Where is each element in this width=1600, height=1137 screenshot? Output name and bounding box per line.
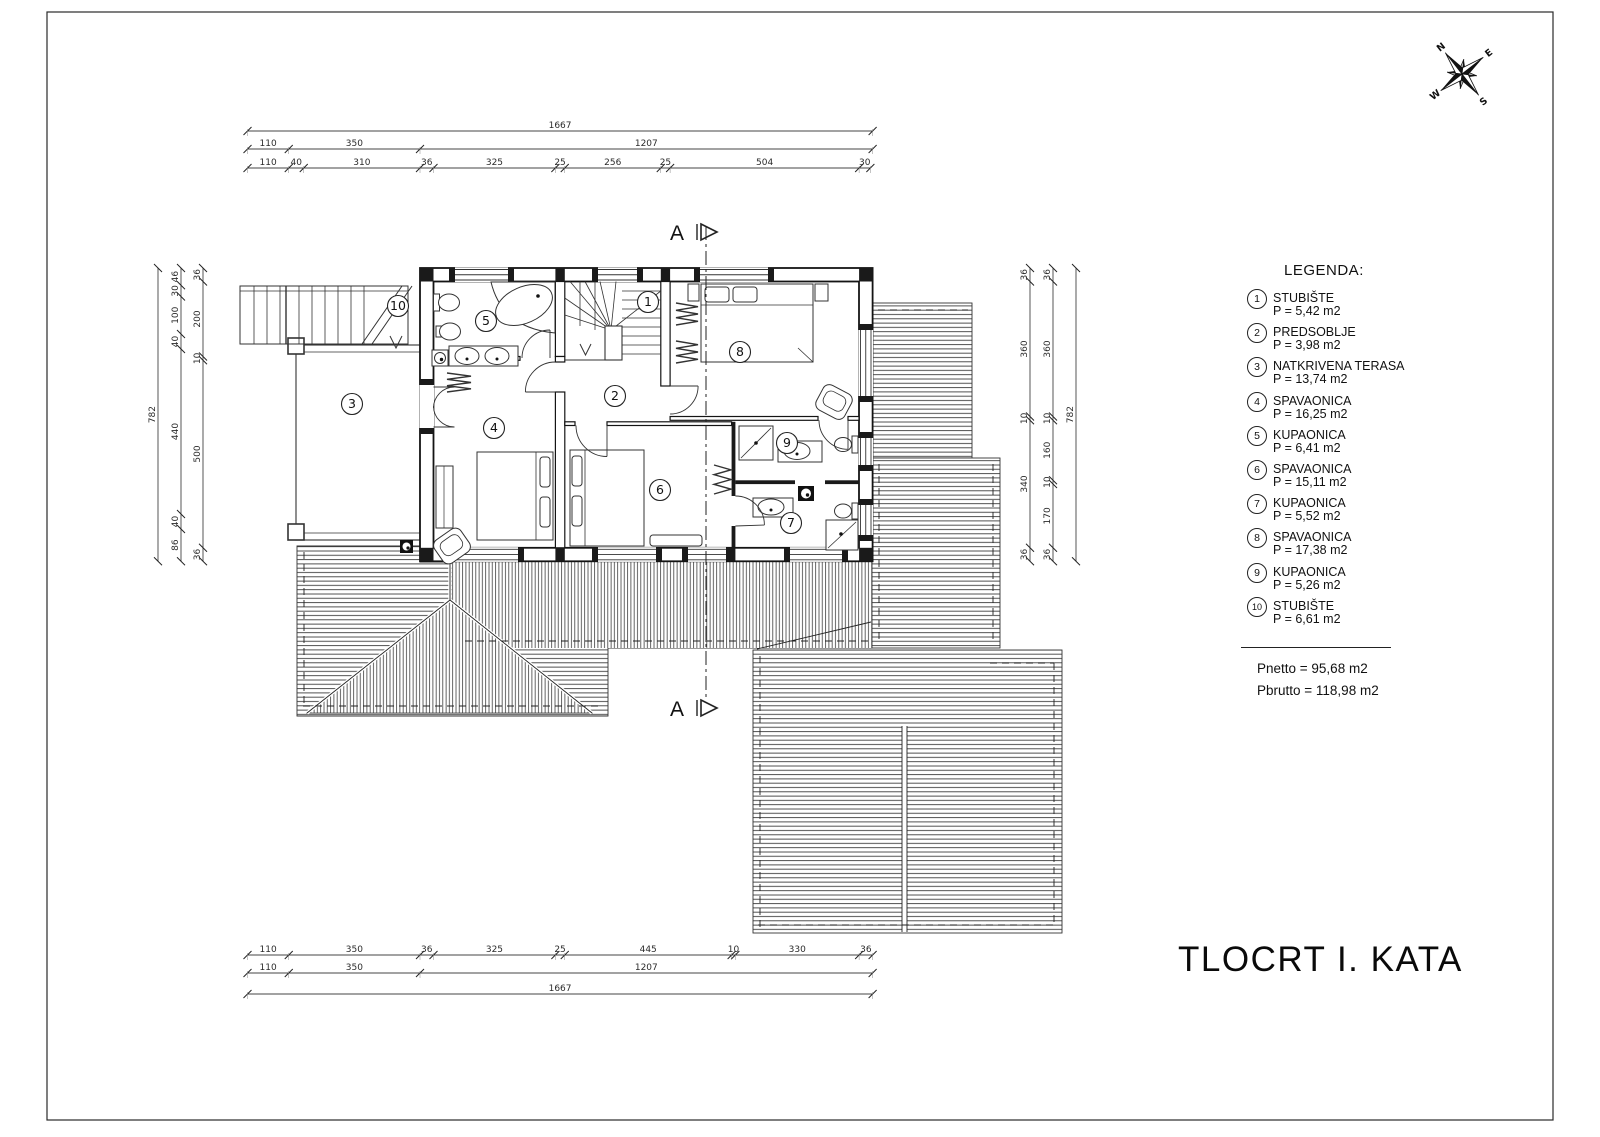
svg-text:6: 6 <box>656 482 664 497</box>
dimension-label: 36 <box>193 269 203 281</box>
terrace <box>288 338 420 553</box>
legend-item-name: NATKRIVENA TERASA <box>1273 359 1405 373</box>
legend-item-area: P = 5,42 m2 <box>1273 304 1341 318</box>
legend-item: 5KUPAONICAP = 6,41 m2 <box>1247 428 1577 462</box>
dimension-label: 350 <box>346 963 363 973</box>
dimension-label: 340 <box>1020 475 1030 492</box>
legend-item: 7KUPAONICAP = 5,52 m2 <box>1247 496 1577 530</box>
room-number-1: 1 <box>638 292 659 313</box>
terrace-column <box>288 524 304 540</box>
legend-item: 3NATKRIVENA TERASAP = 13,74 m2 <box>1247 359 1577 393</box>
legend-item-area: P = 17,38 m2 <box>1273 543 1347 557</box>
room-number-10: 10 <box>388 296 409 317</box>
pillow-icon <box>572 496 582 526</box>
dimension-label: 170 <box>1043 507 1053 524</box>
legend-item-name: SPAVAONICA <box>1273 462 1352 476</box>
legend-item-area: P = 5,52 m2 <box>1273 509 1341 523</box>
legend-item-number: 8 <box>1247 528 1267 548</box>
pillow-icon <box>540 497 550 527</box>
dimension-label: 36 <box>1043 549 1053 561</box>
dimension-label: 25 <box>554 158 565 168</box>
dimension-label: 30 <box>859 158 871 168</box>
dimension-label: 1667 <box>549 121 572 131</box>
dimension-label: 350 <box>346 139 363 149</box>
room-number-9: 9 <box>777 433 798 454</box>
svg-text:4: 4 <box>490 420 498 435</box>
dimension-label: 330 <box>789 945 806 955</box>
dimension-label: 86 <box>171 539 181 551</box>
exterior-stair <box>240 286 412 348</box>
pillow-icon <box>705 287 729 302</box>
legend-item: 4SPAVAONICAP = 16,25 m2 <box>1247 394 1577 428</box>
legend: LEGENDA: 1STUBIŠTEP = 5,42 m22PREDSOBLJE… <box>1247 262 1577 702</box>
legend-item-name: STUBIŠTE <box>1273 291 1334 305</box>
dimension-label: 30 <box>171 285 181 297</box>
legend-item-area: P = 3,98 m2 <box>1273 338 1341 352</box>
svg-text:1: 1 <box>644 294 652 309</box>
compass-letter-s: S <box>1478 95 1490 108</box>
dimension-label: 36 <box>421 158 433 168</box>
legend-item: 6SPAVAONICAP = 15,11 m2 <box>1247 462 1577 496</box>
roof-right-upper <box>872 303 972 458</box>
room-number-4: 4 <box>484 418 505 439</box>
room-number-7: 7 <box>781 513 802 534</box>
sink-icon <box>485 348 509 365</box>
dimension-label: 46 <box>171 271 181 283</box>
legend-item-name: KUPAONICA <box>1273 496 1346 510</box>
dimension-label: 40 <box>171 336 181 348</box>
dimension-label: 40 <box>291 158 303 168</box>
roof-south-east <box>753 650 1062 933</box>
section-marker-arrow-icon <box>701 224 717 240</box>
legend-item-number: 3 <box>1247 357 1267 377</box>
compass-letter-e: E <box>1483 47 1495 60</box>
legend-item-number: 9 <box>1247 563 1267 583</box>
legend-item-area: P = 5,26 m2 <box>1273 578 1341 592</box>
svg-text:7: 7 <box>787 515 795 530</box>
dimension-label: 110 <box>260 139 277 149</box>
room-number-6: 6 <box>650 480 671 501</box>
dimension-label: 110 <box>260 158 277 168</box>
compass-rose-icon: NESW <box>1407 20 1517 130</box>
legend-item-number: 10 <box>1247 597 1267 617</box>
pillow-icon <box>572 456 582 486</box>
legend-total-gross: Pbrutto = 118,98 m2 <box>1257 680 1577 702</box>
legend-item-area: P = 6,61 m2 <box>1273 612 1341 626</box>
dimension-label: 1207 <box>635 139 658 149</box>
legend-item-number: 5 <box>1247 426 1267 446</box>
dimension-label: 10 <box>1043 412 1053 424</box>
stair-direction-arrow <box>390 336 402 348</box>
legend-item-name: PREDSOBLJE <box>1273 325 1356 339</box>
dimension-label: 25 <box>660 158 671 168</box>
dimension-label: 110 <box>260 945 277 955</box>
dimension-label: 40 <box>171 516 181 528</box>
dimension-label: 10 <box>1020 412 1030 424</box>
dimension-label: 782 <box>148 406 158 423</box>
legend-item-name: SPAVAONICA <box>1273 394 1352 408</box>
pillow-icon <box>540 457 550 487</box>
svg-text:8: 8 <box>736 344 744 359</box>
compass-letter-w: W <box>1428 87 1443 102</box>
svg-text:5: 5 <box>482 313 490 328</box>
svg-text:9: 9 <box>783 435 791 450</box>
dimension-label: 504 <box>756 158 773 168</box>
legend-item-area: P = 15,11 m2 <box>1273 475 1347 489</box>
legend-item-area: P = 6,41 m2 <box>1273 441 1341 455</box>
legend-item-name: STUBIŠTE <box>1273 599 1334 613</box>
dimension-label: 10 <box>728 945 740 955</box>
legend-item-name: SPAVAONICA <box>1273 530 1352 544</box>
dimension-label: 500 <box>193 445 203 462</box>
dimension-label: 10 <box>1043 476 1053 488</box>
dimension-label: 350 <box>346 945 363 955</box>
section-marker-label: A <box>670 698 684 721</box>
dimension-label: 160 <box>1043 441 1053 458</box>
legend-total-net: Pnetto = 95,68 m2 <box>1257 658 1577 680</box>
legend-item: 10STUBIŠTEP = 6,61 m2 <box>1247 599 1577 633</box>
dimension-label: 36 <box>193 549 203 561</box>
legend-title: LEGENDA: <box>1284 262 1577 279</box>
dimension-label: 1207 <box>635 963 658 973</box>
room-number-2: 2 <box>605 386 626 407</box>
room-number-8: 8 <box>730 342 751 363</box>
legend-item-area: P = 13,74 m2 <box>1273 372 1347 386</box>
dimension-label: 36 <box>1020 269 1030 281</box>
drawing-title: TLOCRT I. KATA <box>1178 940 1463 980</box>
pillow-icon <box>733 287 757 302</box>
legend-item: 2PREDSOBLJEP = 3,98 m2 <box>1247 325 1577 359</box>
dimension-label: 25 <box>554 945 565 955</box>
section-marker-arrow-icon <box>701 700 717 716</box>
room-number-3: 3 <box>342 394 363 415</box>
dimension-label: 36 <box>1043 269 1053 281</box>
legend-item-number: 2 <box>1247 323 1267 343</box>
bench-icon <box>650 535 702 546</box>
dimension-label: 325 <box>486 158 503 168</box>
legend-item-area: P = 16,25 m2 <box>1273 407 1347 421</box>
dimension-label: 36 <box>421 945 433 955</box>
dimension-label: 36 <box>1020 549 1030 561</box>
dimension-label: 360 <box>1043 340 1053 357</box>
section-marker-label: A <box>670 222 684 245</box>
dimension-label: 445 <box>640 945 657 955</box>
toilet-icon <box>852 503 858 519</box>
roof-right-mid <box>872 458 1000 648</box>
wardrobe-icon <box>436 466 453 528</box>
dimension-label: 310 <box>353 158 370 168</box>
legend-item: 8SPAVAONICAP = 17,38 m2 <box>1247 530 1577 564</box>
terrace-column <box>288 338 304 354</box>
dimension-label: 100 <box>171 306 181 323</box>
dimension-label: 10 <box>193 352 203 364</box>
dimension-label: 200 <box>193 310 203 327</box>
sink-icon <box>455 348 479 365</box>
room-number-5: 5 <box>476 311 497 332</box>
legend-item-number: 4 <box>1247 392 1267 412</box>
drawing-sheet: 1667110350120711040310363252525625504301… <box>0 0 1600 1132</box>
compass-letter-n: N <box>1435 41 1448 55</box>
dimension-label: 36 <box>860 945 872 955</box>
dimension-label: 440 <box>171 423 181 440</box>
legend-item-number: 1 <box>1247 289 1267 309</box>
dimension-label: 110 <box>260 963 277 973</box>
svg-text:2: 2 <box>611 388 619 403</box>
dimension-label: 325 <box>486 945 503 955</box>
toilet-icon <box>852 436 858 453</box>
dimension-label: 256 <box>604 158 621 168</box>
legend-item-number: 6 <box>1247 460 1267 480</box>
legend-item: 9KUPAONICAP = 5,26 m2 <box>1247 565 1577 599</box>
legend-item: 1STUBIŠTEP = 5,42 m2 <box>1247 291 1577 325</box>
legend-item-name: KUPAONICA <box>1273 565 1346 579</box>
legend-item-name: KUPAONICA <box>1273 428 1346 442</box>
legend-item-number: 7 <box>1247 494 1267 514</box>
roof-strip-south <box>452 562 872 648</box>
svg-text:10: 10 <box>390 298 406 313</box>
svg-text:3: 3 <box>348 396 356 411</box>
dimension-label: 782 <box>1066 406 1076 423</box>
dimension-label: 1667 <box>549 984 572 994</box>
legend-divider <box>1241 647 1391 648</box>
dimension-label: 360 <box>1020 340 1030 357</box>
